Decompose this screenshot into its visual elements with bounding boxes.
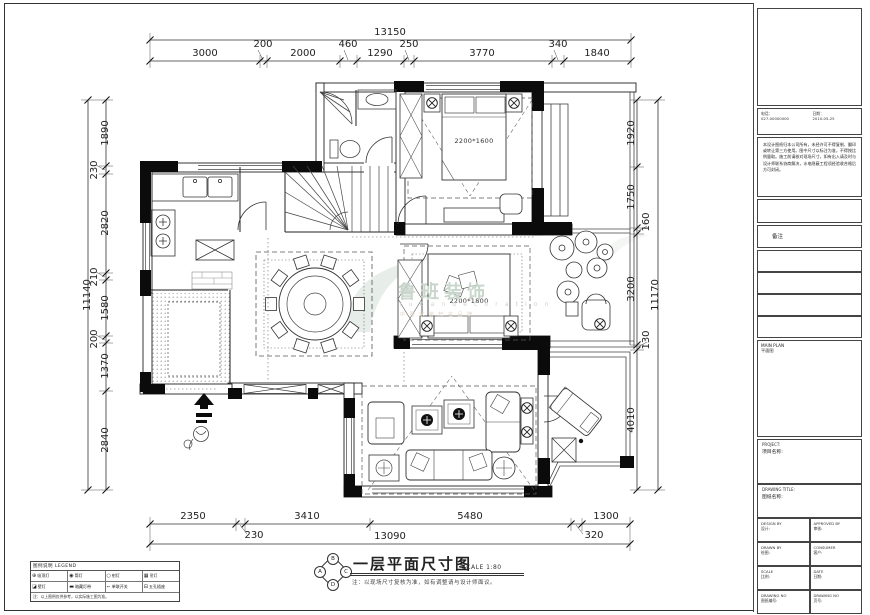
dim-label: 1290 — [367, 49, 392, 59]
dim-label: 5480 — [457, 512, 482, 522]
dim-label: 230 — [244, 531, 263, 541]
dim-label: 250 — [399, 40, 418, 50]
entry-arrow — [184, 393, 214, 450]
legend-note: 注：以上图例仅供参考，以实际施工图为准。 — [31, 593, 179, 601]
logo-box — [757, 8, 862, 106]
legend-symbol-icon: ○ — [107, 574, 111, 579]
dwg-title-label-cn: 图纸名称: — [762, 493, 857, 500]
legend-label: 五孔插座 — [149, 584, 165, 590]
dim-label: 200 — [253, 40, 272, 50]
project-box: PROJECT: 项目名称: — [757, 439, 862, 484]
balcony-lower — [549, 387, 603, 462]
legend-label: 吸顶灯 — [37, 573, 49, 579]
legend-table: 图例说明 LEGEND ⊕吸顶灯 ◉筒灯 ○射灯 ▦吊灯 ◪壁灯 ▬暗藏灯带 ⌐… — [30, 561, 180, 602]
desk-icon — [444, 208, 504, 222]
empty-box — [757, 199, 862, 223]
signature-grid: DESIGN BY 设计: APPROVED BY 审核: DRAWN BY 绘… — [757, 518, 862, 614]
field-date: DATE 日期: — [810, 566, 863, 590]
living-room — [362, 376, 536, 494]
remark-row: 备注 — [757, 225, 862, 248]
plan-area: 13150 3000 200 2000 460 1290 250 3770 34… — [0, 0, 755, 615]
dim-label: 1580 — [101, 295, 111, 320]
dim-label: 2820 — [101, 210, 111, 235]
stamp-circle-b: B — [327, 553, 339, 565]
main-plan-box: MAIN PLAN 平面图 — [757, 340, 862, 437]
dim-label: 1300 — [593, 512, 618, 522]
field-label-cn: 页号: — [814, 598, 859, 603]
legend-label: 射灯 — [112, 573, 120, 579]
drawing-sheet: 13150 3000 200 2000 460 1290 250 3770 34… — [0, 0, 870, 615]
dim-label: 460 — [338, 40, 357, 50]
drawing-title: 一层平面尺寸图 — [353, 553, 472, 574]
dim-label: 200 — [90, 329, 100, 348]
bed-size-label: 2200*1600 — [454, 137, 493, 145]
drawing-title-box: DRAWING TITLE: 图纸名称: — [757, 484, 862, 518]
field-approved-by: APPROVED BY 审核: — [810, 518, 863, 542]
title-block: 电话： 027-00000000 日期： 2010-05-25 本设计图纸归本公… — [753, 3, 866, 612]
main-plan-cn: 平面图 — [761, 348, 858, 353]
legend-label: 筒灯 — [75, 573, 83, 579]
field-page-no: DRAWING NO 页号: — [810, 590, 863, 614]
legend-item: ⊕吸顶灯 — [31, 571, 68, 581]
drawing-scale: SCALE 1:80 — [462, 564, 502, 571]
disclaimer-text: 本设计图纸归本公司所有，未经许可不得复制、翻印或转让第三方使用。图中尺寸以标注为… — [757, 137, 862, 197]
legend-symbol-icon: ◉ — [69, 574, 73, 579]
revision-stamp: B A C D — [314, 553, 350, 589]
dim-label: 3410 — [294, 512, 319, 522]
legend-label: 壁灯 — [38, 584, 46, 590]
kitchen-fixtures — [151, 174, 238, 260]
legend-item: ⌐单联开关 — [106, 582, 143, 592]
tiled-floor-hatch — [150, 272, 232, 385]
empty-row — [757, 294, 862, 316]
dim-label: 3200 — [627, 276, 637, 301]
chair-icon — [582, 300, 610, 330]
dim-label: 1920 — [627, 120, 637, 145]
dim-label: 11170 — [651, 279, 661, 311]
dim-label: 130 — [642, 330, 652, 349]
stamp-circle-c: C — [340, 566, 352, 578]
field-label-cn: 设计: — [761, 526, 806, 531]
dim-label: 1750 — [627, 184, 637, 209]
empty-row — [757, 272, 862, 294]
dim-label: 13150 — [374, 28, 406, 38]
field-label-cn: 图纸编号: — [761, 598, 806, 603]
dwg-title-label-en: DRAWING TITLE: — [762, 487, 857, 492]
staircase — [285, 166, 388, 232]
field-label-cn: 比例: — [761, 574, 806, 579]
bedroom-top — [400, 94, 532, 222]
floor-plan-drawing — [0, 0, 755, 615]
stamp-circle-a: A — [314, 566, 326, 578]
field-label-cn: 审核: — [814, 526, 859, 531]
field-consumer: CONSUMER 客户: — [810, 542, 863, 566]
watermark-text-en: l u b a n d e c o r a t i o n — [400, 301, 551, 308]
legend-item: ◪壁灯 — [31, 582, 68, 592]
legend-symbol-icon: ◪ — [32, 585, 37, 590]
dim-label: 340 — [548, 40, 567, 50]
legend-item: ▦吊灯 — [143, 571, 179, 581]
info-right-value: 2010-05-25 — [813, 116, 859, 121]
legend-symbol-icon: ⊟ — [144, 585, 148, 590]
dim-label: 160 — [642, 212, 652, 231]
legend-label: 暗藏灯带 — [75, 584, 91, 590]
field-drawn-by: DRAWN BY 绘图: — [757, 542, 810, 566]
dim-label: 2840 — [101, 427, 111, 452]
dim-label: 4010 — [627, 407, 637, 432]
dim-label: 1890 — [101, 120, 111, 145]
info-left-value: 027-00000000 — [761, 116, 807, 121]
legend-item: ⊟五孔插座 — [143, 582, 179, 592]
person-icon — [194, 427, 209, 442]
legend-header: 图例说明 LEGEND — [31, 562, 179, 571]
field-design-by: DESIGN BY 设计: — [757, 518, 810, 542]
lounge-chair-icon — [549, 387, 603, 437]
empty-row — [757, 250, 862, 272]
watermark-tagline: 中 国 家 装 知 名 品 牌 — [400, 311, 474, 318]
wall-x-boxes — [244, 385, 344, 394]
dim-label: 3000 — [192, 49, 217, 59]
legend-symbol-icon: ▬ — [69, 585, 74, 590]
project-label-en: PROJECT: — [762, 442, 857, 447]
legend-label: 单联开关 — [112, 584, 128, 590]
empty-row — [757, 316, 862, 338]
legend-item: ◉筒灯 — [68, 571, 105, 581]
legend-label: 吊灯 — [149, 573, 157, 579]
legend-item: ▬暗藏灯带 — [68, 582, 105, 592]
dim-label: 3770 — [469, 49, 494, 59]
field-label-cn: 绘图: — [761, 550, 806, 555]
bathroom-fixtures — [320, 90, 396, 158]
dim-label: 11140 — [83, 279, 93, 311]
field-label-cn: 客户: — [814, 550, 859, 555]
legend-symbol-icon: ⊕ — [32, 574, 36, 579]
dim-label: 230 — [90, 160, 100, 179]
dim-label: 1370 — [101, 353, 111, 378]
dim-label: 2000 — [290, 49, 315, 59]
balcony-plants — [550, 231, 613, 330]
title-underline — [350, 573, 524, 576]
legend-symbol-icon: ⌐ — [107, 585, 111, 590]
field-drawing-no: DRAWING NO 图纸编号: — [757, 590, 810, 614]
legend-symbol-icon: ▦ — [144, 574, 149, 579]
bay-window — [542, 104, 568, 216]
stamp-circle-d: D — [327, 579, 339, 591]
legend-item: ○射灯 — [106, 571, 143, 581]
info-row: 电话： 027-00000000 日期： 2010-05-25 — [757, 108, 862, 135]
chair-icon — [500, 194, 522, 214]
dim-label: 2350 — [180, 512, 205, 522]
project-label-cn: 项目名称: — [762, 448, 857, 455]
field-label-cn: 日期: — [814, 574, 859, 579]
drawing-note: 注：以现场尺寸复核为准，如有调整请与设计师面议。 — [352, 578, 496, 586]
dim-label: 320 — [584, 531, 603, 541]
field-scale: SCALE 比例: — [757, 566, 810, 590]
dim-label: 1840 — [584, 49, 609, 59]
dining-table — [256, 252, 372, 356]
dim-label: 13090 — [374, 532, 406, 542]
